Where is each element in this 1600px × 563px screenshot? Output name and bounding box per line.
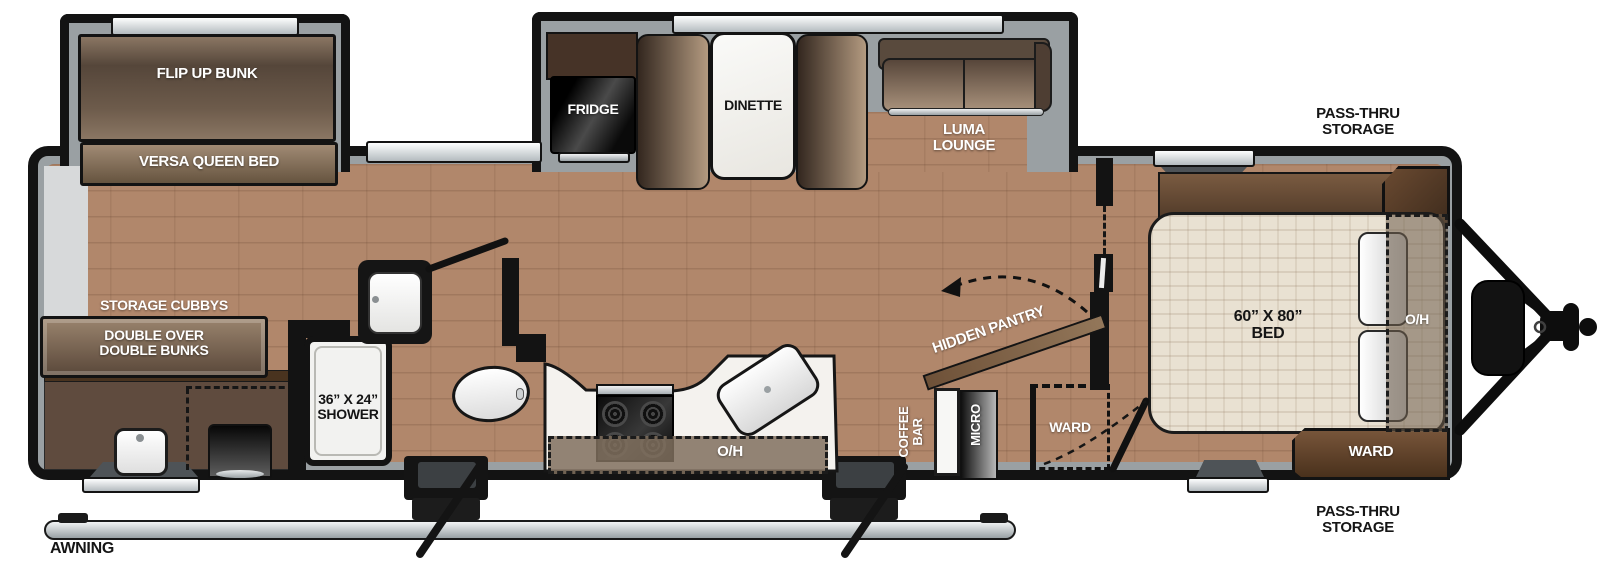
luma-lounge-label: LUMA LOUNGE	[912, 122, 1016, 154]
fridge-label: FRIDGE	[550, 102, 636, 117]
kitchen-sink-drain	[764, 386, 771, 393]
luma-lounge-cushion-divider	[963, 60, 965, 110]
bed-overhead-label: O/H	[1392, 312, 1442, 327]
entry-door-1-platform-inset	[418, 462, 476, 488]
fridge-cabinet	[546, 32, 638, 80]
microwave-label: MICRO	[969, 388, 989, 462]
luma-lounge-arm	[1034, 42, 1052, 112]
pocket-door-dashed	[1103, 206, 1106, 254]
mid-wardrobe-label: WARD	[1030, 420, 1110, 435]
partition-wall	[1090, 292, 1109, 390]
rear-appliance-base	[216, 470, 264, 478]
bedroom-wardrobe-label: WARD	[1292, 444, 1450, 460]
propane-tanks	[1472, 281, 1524, 375]
awning-bar	[44, 520, 1016, 540]
dinette-bench	[796, 34, 868, 190]
bathroom-wall	[502, 258, 519, 346]
dinette-label: DINETTE	[710, 98, 796, 113]
awning-bracket	[980, 513, 1008, 523]
kitchen-overhead-cabinet	[548, 436, 828, 474]
bedroom-bottom-window	[1187, 477, 1269, 493]
partition-wall	[1096, 158, 1113, 206]
rear-counter-divider-dashed	[186, 386, 294, 389]
floorplan-canvas: PASS-THRU STORAGE PASS-THRU STORAGE AWNI…	[0, 0, 1600, 563]
awning-label: AWNING	[50, 540, 114, 557]
entry-door-2-step	[830, 498, 898, 520]
bed-label: 60” X 80” BED	[1193, 308, 1343, 343]
entry-door-2-platform-inset	[836, 462, 894, 488]
hitch-ball	[1579, 318, 1597, 336]
stove-burner	[640, 401, 666, 427]
luma-lounge-front-trim	[888, 108, 1044, 116]
tongue-jack	[1563, 303, 1579, 351]
flip-up-bunk	[78, 34, 336, 142]
kitchen-end-wall	[516, 334, 546, 362]
coffee-bar	[934, 388, 960, 476]
bedroom-bottom-window-shade	[1196, 460, 1264, 477]
rear-sink-faucet	[136, 434, 144, 442]
storage-cubbys-label: STORAGE CUBBYS	[88, 298, 240, 313]
pass-thru-storage-label-bottom: PASS-THRU STORAGE	[1288, 504, 1428, 536]
bath-sink-faucet	[372, 296, 379, 303]
bunk-slideout-window	[111, 16, 299, 36]
kitchen-overhead-label: O/H	[700, 444, 760, 460]
pass-thru-storage-label-top: PASS-THRU STORAGE	[1288, 106, 1428, 138]
hitch-frame	[1460, 224, 1557, 430]
flip-up-bunk-label: FLIP UP BUNK	[78, 66, 336, 82]
coffee-bar-label: COFFEE BAR	[897, 395, 937, 469]
hitch-coupler	[1540, 311, 1574, 341]
shower-label: 36” X 24” SHOWER	[300, 392, 396, 422]
bath-sink	[368, 272, 422, 334]
stove-burner	[602, 401, 628, 427]
mid-wall-window	[366, 141, 542, 163]
entry-door-1-step	[412, 498, 480, 520]
versa-queen-bed-label: VERSA QUEEN BED	[80, 154, 338, 170]
dinette-bench	[636, 34, 710, 190]
rear-counter-divider-dashed	[186, 388, 189, 470]
rear-bottom-window	[82, 477, 200, 493]
toilet-flush	[516, 388, 524, 400]
double-bunks-label: DOUBLE OVER DOUBLE BUNKS	[40, 328, 268, 358]
awning-bracket	[58, 513, 88, 523]
bedroom-top-window	[1153, 149, 1255, 167]
hitch-pin	[1535, 322, 1545, 332]
fridge-kickplate	[558, 152, 630, 163]
galley-slideout-window	[672, 14, 1004, 34]
